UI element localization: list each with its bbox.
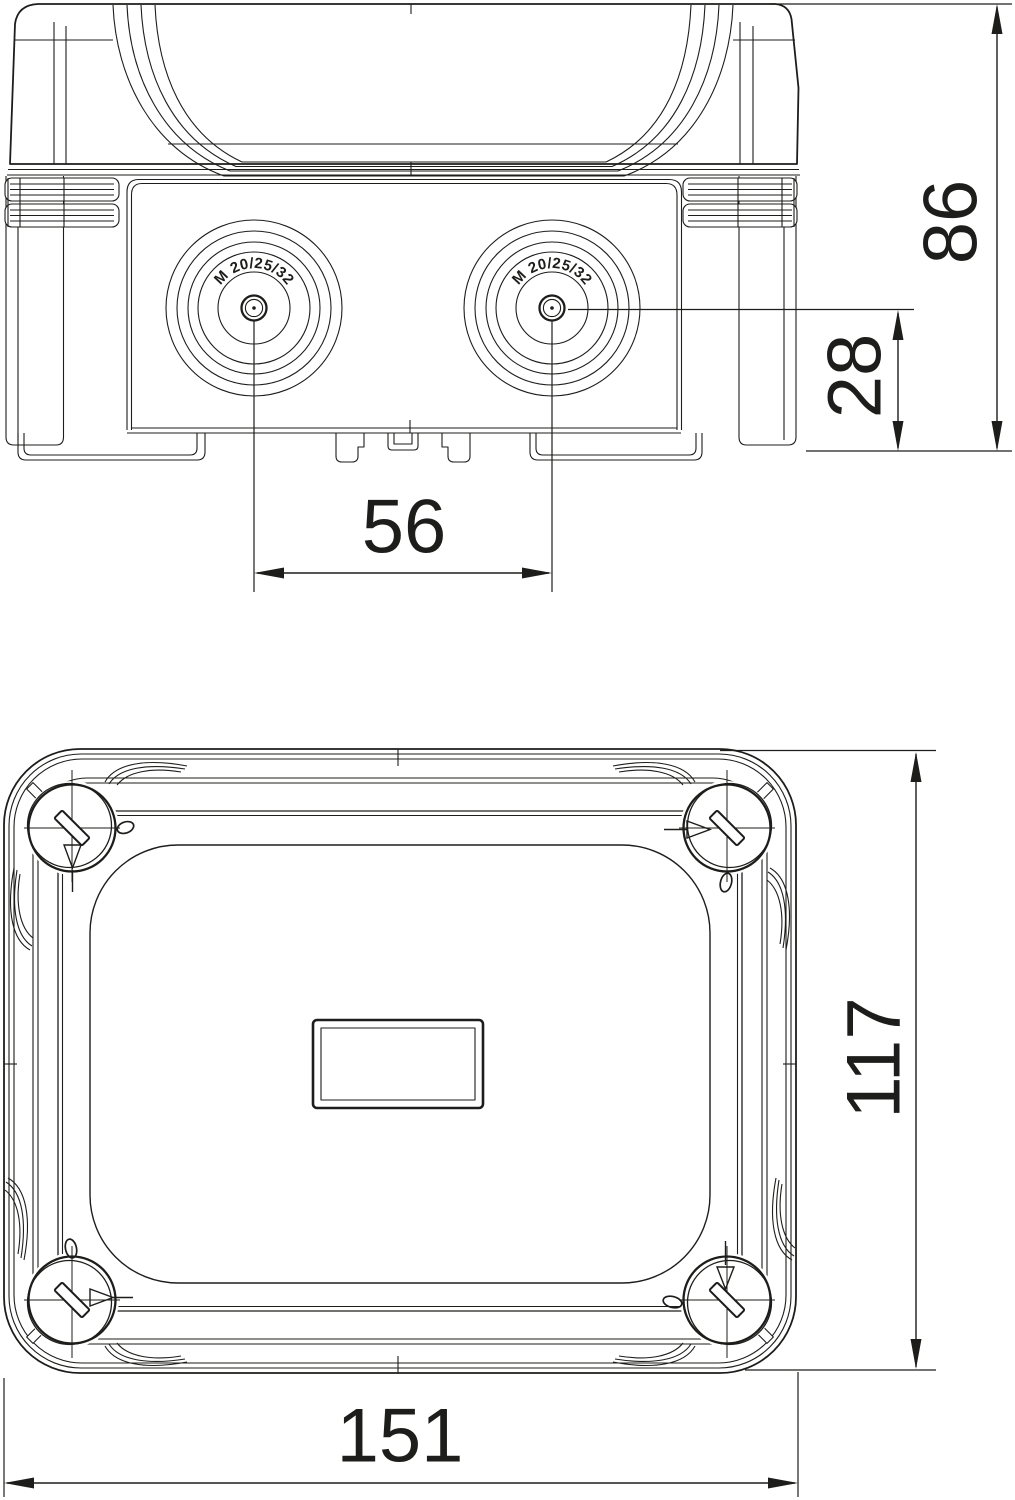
dim-label-width: 151 (337, 1394, 464, 1479)
dim-label-height: 86 (909, 180, 994, 265)
arrow-right-icon (768, 1478, 798, 1489)
bottom-view: 117 151 (4, 749, 936, 1497)
arrow-down-icon (992, 421, 1003, 451)
arrow-up-icon (992, 4, 1003, 34)
arrow-down-icon (911, 1339, 922, 1369)
latch-ribs-left (5, 178, 119, 227)
arrow-right-icon (522, 568, 552, 579)
mounting-feet (18, 433, 702, 462)
cable-entry-label: M 20/25/32 (509, 255, 595, 288)
cable-entry-label: M 20/25/32 (211, 255, 297, 288)
lid-seam (7, 170, 800, 176)
dim-label-entry-spacing: 56 (362, 485, 447, 570)
dim-entry-axis-height: 28 (568, 310, 914, 452)
body-face (127, 180, 682, 434)
side-view: M 20/25/32 M 20/25/32 86 (5, 4, 1012, 592)
dim-overall-width: 151 (4, 1372, 798, 1497)
dim-label-depth: 117 (832, 997, 917, 1118)
dim-label-entry-axis: 28 (813, 334, 898, 419)
dim-entry-spacing: 56 (254, 321, 552, 592)
arrow-left-icon (4, 1478, 34, 1489)
arrow-down-icon (893, 421, 904, 451)
junction-box-drawing: M 20/25/32 M 20/25/32 86 (0, 0, 1015, 1500)
technical-drawing-page: M 20/25/32 M 20/25/32 86 (0, 0, 1015, 1500)
latch-ribs-right (683, 178, 797, 227)
arrow-up-icon (911, 752, 922, 782)
lid-contours (4, 749, 796, 1373)
arrow-left-icon (254, 568, 284, 579)
